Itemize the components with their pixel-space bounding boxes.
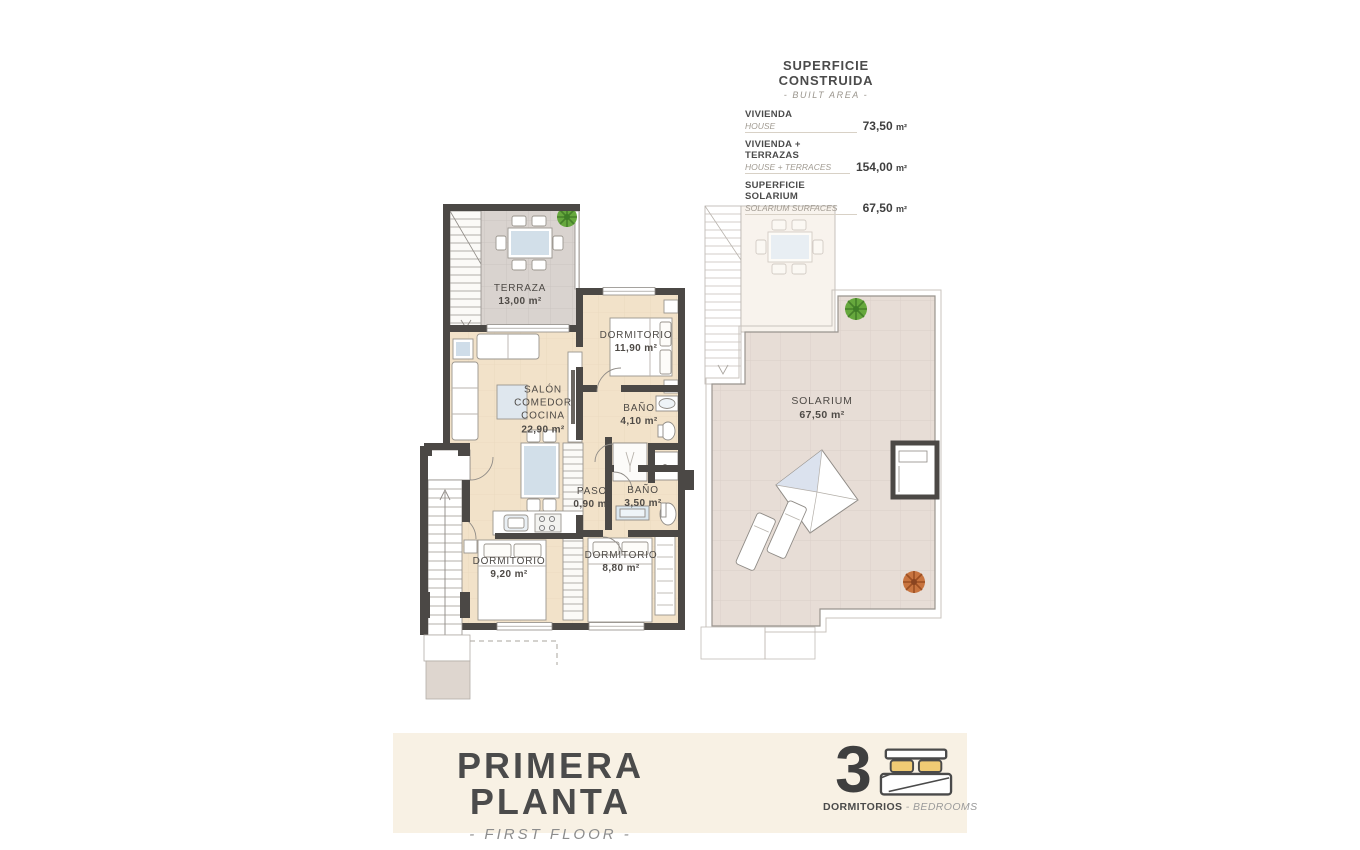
row-label-es: SUPERFICIE SOLARIUM [745, 180, 857, 202]
room-area: 3,50 m² [624, 497, 661, 510]
floor-plan-drawing [0, 0, 1360, 850]
bedrooms-label: DORMITORIOS - BEDROOMS [823, 801, 965, 813]
panel-title: SUPERFICIE CONSTRUIDA [745, 58, 907, 88]
room-label-dormitorio1: DORMITORIO 11,90 m² [600, 329, 673, 355]
bed-icon [879, 747, 953, 799]
outdoor-kitchen [893, 443, 937, 497]
row-label-es: VIVIENDA + TERRAZAS [745, 139, 850, 161]
room-area: 0,90 m² [573, 498, 610, 511]
area-row-solarium: SUPERFICIE SOLARIUM SOLARIUM SURFACES 67… [745, 180, 907, 215]
room-name: BAÑO [624, 484, 661, 497]
room-label-solarium: SOLARIUM 67,50 m² [791, 395, 852, 423]
room-name: COCINA [514, 410, 572, 423]
row-value: 67,50 m² [863, 201, 907, 215]
room-name: BAÑO [620, 402, 657, 415]
room-area: 22,90 m² [514, 423, 572, 436]
room-name: DORMITORIO [600, 329, 673, 342]
room-area: 67,50 m² [791, 409, 852, 423]
room-area: 8,80 m² [585, 562, 658, 575]
room-label-dormitorio2: DORMITORIO 9,20 m² [473, 555, 546, 581]
ghost-terrace [741, 206, 835, 332]
row-label-en: HOUSE [745, 121, 857, 131]
room-label-dormitorio3: DORMITORIO 8,80 m² [585, 549, 658, 575]
terrace-staircase [450, 211, 481, 331]
room-area: 4,10 m² [620, 415, 657, 428]
floor-title-block: PRIMERA PLANTA - FIRST FLOOR - [393, 748, 708, 843]
flyer-page: TERRAZA 13,00 m² SALÓN COMEDOR COCINA 22… [0, 0, 1360, 850]
row-value: 73,50 m² [863, 119, 907, 133]
room-label-paso: PASO 0,90 m² [573, 485, 610, 511]
area-row-vivienda: VIVIENDA HOUSE 73,50 m² [745, 109, 907, 133]
room-name: SALÓN [514, 384, 572, 397]
area-row-vivienda-terrazas: VIVIENDA + TERRAZAS HOUSE + TERRACES 154… [745, 139, 907, 174]
floor-title: PRIMERA PLANTA [393, 748, 708, 820]
nightstand [664, 300, 678, 313]
room-area: 13,00 m² [494, 295, 546, 308]
bedrooms-block: 3 DORMITORIOS - BEDROOMS [823, 738, 965, 813]
sofa-chaise [452, 362, 478, 440]
ghost-staircase [705, 206, 741, 384]
room-label-bano1: BAÑO 4,10 m² [620, 402, 657, 428]
room-name: COMEDOR [514, 397, 572, 410]
room-label-bano2: BAÑO 3,50 m² [624, 484, 661, 510]
row-label-es: VIVIENDA [745, 109, 857, 120]
shower [613, 443, 647, 481]
room-label-salon: SALÓN COMEDOR COCINA 22,90 m² [514, 384, 572, 437]
floor-plan-solarium [701, 206, 941, 659]
room-name: TERRAZA [494, 282, 546, 295]
terrace-parapet [575, 211, 579, 289]
room-area: 9,20 m² [473, 568, 546, 581]
built-area-panel: SUPERFICIE CONSTRUIDA - BUILT AREA - VIV… [745, 58, 907, 215]
floor-plan-apartment [420, 204, 694, 699]
wardrobe [655, 535, 675, 615]
room-name: DORMITORIO [585, 549, 658, 562]
footer-banner: PRIMERA PLANTA - FIRST FLOOR - 3 DORMITO… [393, 733, 967, 833]
room-area: 11,90 m² [600, 342, 673, 355]
kitchen-counter [493, 511, 583, 535]
bedrooms-count: 3 [835, 738, 872, 801]
room-label-terraza: TERRAZA 13,00 m² [494, 282, 546, 308]
row-value: 154,00 m² [856, 160, 907, 174]
stove [535, 514, 561, 532]
row-label-en: HOUSE + TERRACES [745, 162, 850, 172]
plant-icon [845, 298, 867, 320]
room-name: SOLARIUM [791, 395, 852, 409]
floor-subtitle: - FIRST FLOOR - [393, 826, 708, 843]
panel-subtitle: - BUILT AREA - [745, 90, 907, 100]
plant-icon [903, 571, 925, 593]
room-name: PASO [573, 485, 610, 498]
room-name: DORMITORIO [473, 555, 546, 568]
row-label-en: SOLARIUM SURFACES [745, 203, 857, 213]
nightstand [464, 540, 477, 553]
dashed-projection [470, 641, 557, 665]
stair-landing [426, 661, 470, 699]
